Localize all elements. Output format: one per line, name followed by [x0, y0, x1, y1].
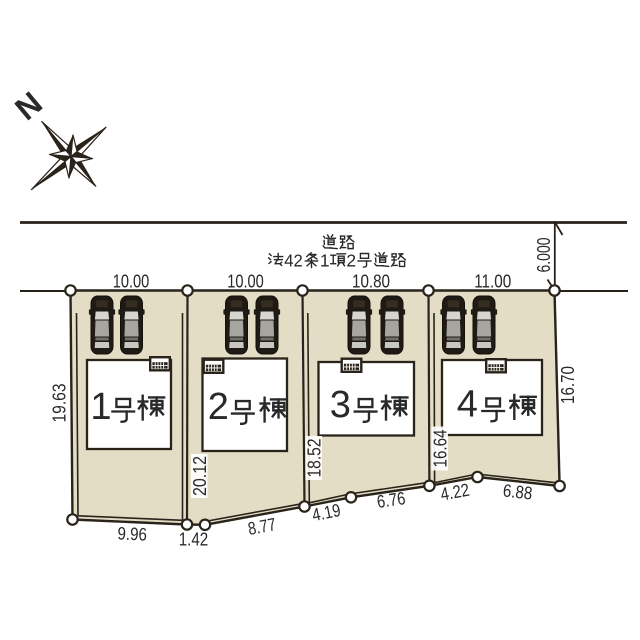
svg-text:20.12: 20.12 — [190, 456, 210, 496]
svg-text:6.76: 6.76 — [376, 488, 407, 512]
svg-text:1.42: 1.42 — [179, 529, 209, 549]
svg-text:11.00: 11.00 — [474, 272, 511, 292]
svg-text:1: 1 — [320, 251, 330, 271]
svg-text:10.80: 10.80 — [352, 272, 390, 292]
svg-text:16.64: 16.64 — [431, 430, 451, 468]
svg-text:16.70: 16.70 — [558, 366, 578, 404]
svg-text:1: 1 — [90, 386, 111, 428]
svg-text:2: 2 — [346, 251, 356, 271]
svg-text:4: 4 — [457, 384, 478, 426]
svg-text:6.000: 6.000 — [534, 238, 554, 273]
svg-text:10.00: 10.00 — [113, 272, 150, 292]
svg-text:3: 3 — [330, 384, 351, 426]
svg-text:42: 42 — [284, 251, 303, 271]
svg-text:18.52: 18.52 — [305, 439, 325, 478]
svg-text:10.00: 10.00 — [227, 272, 264, 292]
svg-text:6.88: 6.88 — [502, 481, 533, 504]
svg-text:19.63: 19.63 — [50, 384, 70, 423]
svg-text:2: 2 — [208, 386, 229, 428]
svg-text:9.96: 9.96 — [117, 523, 147, 544]
